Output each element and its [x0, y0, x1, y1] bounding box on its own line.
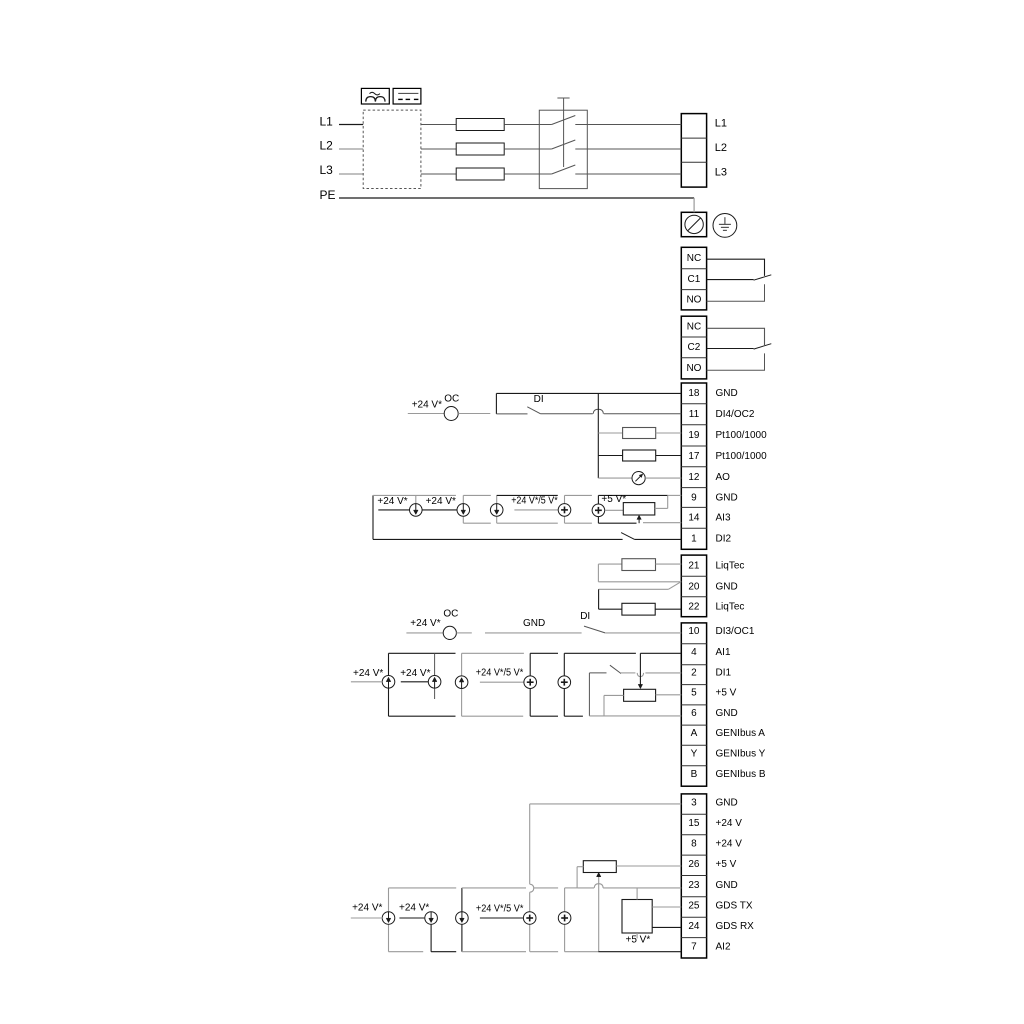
svg-text:A: A — [691, 728, 698, 739]
svg-text:7: 7 — [691, 941, 697, 952]
svg-text:+24 V*: +24 V* — [412, 400, 442, 411]
svg-text:9: 9 — [691, 492, 697, 503]
svg-text:DI3/OC1: DI3/OC1 — [716, 626, 755, 637]
svg-text:1: 1 — [691, 534, 697, 545]
svg-text:+24 V*: +24 V* — [410, 618, 440, 629]
svg-text:Pt100/1000: Pt100/1000 — [716, 451, 768, 462]
svg-text:GND: GND — [716, 388, 738, 399]
svg-text:10: 10 — [688, 626, 700, 637]
svg-text:17: 17 — [688, 451, 700, 462]
svg-text:21: 21 — [688, 561, 700, 572]
svg-text:NO: NO — [686, 295, 701, 306]
svg-text:NC: NC — [687, 253, 701, 264]
svg-text:20: 20 — [688, 581, 700, 592]
svg-text:GND: GND — [716, 708, 738, 719]
svg-text:NO: NO — [686, 363, 701, 374]
svg-text:+24 V*: +24 V* — [400, 668, 430, 679]
svg-text:12: 12 — [688, 472, 700, 483]
svg-text:+24 V*/5 V*: +24 V*/5 V* — [476, 668, 524, 679]
svg-text:8: 8 — [691, 839, 697, 850]
svg-text:+24 V*: +24 V* — [353, 668, 383, 679]
svg-text:6: 6 — [691, 708, 697, 719]
svg-text:GND: GND — [716, 581, 738, 592]
svg-text:+24 V*: +24 V* — [399, 903, 429, 914]
svg-text:GENIbus B: GENIbus B — [716, 769, 766, 780]
svg-text:Pt100/1000: Pt100/1000 — [716, 430, 768, 441]
svg-text:5: 5 — [691, 688, 697, 699]
svg-text:AO: AO — [716, 472, 731, 483]
svg-text:24: 24 — [688, 921, 700, 932]
svg-text:11: 11 — [689, 409, 700, 420]
svg-text:GDS RX: GDS RX — [716, 921, 755, 932]
svg-text:26: 26 — [688, 859, 700, 870]
svg-text:DI1: DI1 — [716, 667, 732, 678]
svg-text:+24 V*/5 V*: +24 V*/5 V* — [476, 903, 524, 914]
svg-text:DI2: DI2 — [716, 534, 732, 545]
svg-text:GDS TX: GDS TX — [716, 901, 753, 912]
svg-text:GND: GND — [523, 618, 545, 629]
svg-text:DI: DI — [534, 394, 544, 405]
svg-text:L3: L3 — [320, 163, 334, 177]
svg-text:GENIbus A: GENIbus A — [716, 728, 766, 739]
svg-text:23: 23 — [688, 880, 700, 891]
svg-text:18: 18 — [688, 388, 700, 399]
svg-text:15: 15 — [688, 818, 700, 829]
svg-text:L1: L1 — [715, 118, 727, 130]
svg-text:+5 V*: +5 V* — [626, 935, 651, 946]
svg-text:22: 22 — [688, 602, 700, 613]
svg-text:2: 2 — [691, 667, 697, 678]
svg-text:+24 V*/5 V*: +24 V*/5 V* — [511, 495, 558, 506]
svg-text:14: 14 — [688, 513, 700, 524]
svg-text:L2: L2 — [715, 142, 727, 154]
svg-text:GND: GND — [716, 880, 738, 891]
svg-text:C2: C2 — [688, 342, 701, 353]
svg-text:4: 4 — [691, 647, 697, 658]
svg-text:DI4/OC2: DI4/OC2 — [716, 409, 755, 420]
svg-text:+24 V*: +24 V* — [426, 496, 456, 507]
svg-text:OC: OC — [444, 393, 459, 404]
svg-text:AI3: AI3 — [716, 513, 731, 524]
svg-text:+24 V: +24 V — [716, 818, 743, 829]
svg-text:GND: GND — [716, 492, 738, 503]
svg-text:+5 V: +5 V — [716, 859, 737, 870]
svg-text:OC: OC — [443, 608, 458, 619]
svg-text:L3: L3 — [715, 166, 727, 178]
svg-text:LiqTec: LiqTec — [716, 602, 745, 613]
svg-text:19: 19 — [688, 430, 700, 441]
svg-text:GND: GND — [716, 798, 738, 809]
svg-text:L1: L1 — [320, 115, 334, 129]
svg-text:AI1: AI1 — [716, 647, 731, 658]
svg-text:3: 3 — [691, 798, 697, 809]
svg-text:+24 V*: +24 V* — [377, 496, 407, 507]
svg-text:PE: PE — [320, 188, 336, 202]
svg-text:+5 V: +5 V — [716, 688, 737, 699]
svg-text:LiqTec: LiqTec — [716, 561, 745, 572]
svg-text:25: 25 — [688, 901, 700, 912]
svg-text:DI: DI — [580, 611, 590, 622]
svg-text:L2: L2 — [320, 139, 334, 153]
svg-text:AI2: AI2 — [716, 941, 731, 952]
svg-text:GENIbus Y: GENIbus Y — [716, 748, 766, 759]
svg-text:B: B — [691, 769, 698, 780]
svg-text:NC: NC — [687, 321, 701, 332]
svg-text:C1: C1 — [688, 274, 701, 285]
svg-text:+24 V: +24 V — [716, 839, 743, 850]
svg-text:+5 V*: +5 V* — [601, 494, 626, 505]
svg-text:+24 V*: +24 V* — [352, 903, 382, 914]
svg-text:Y: Y — [691, 748, 698, 759]
